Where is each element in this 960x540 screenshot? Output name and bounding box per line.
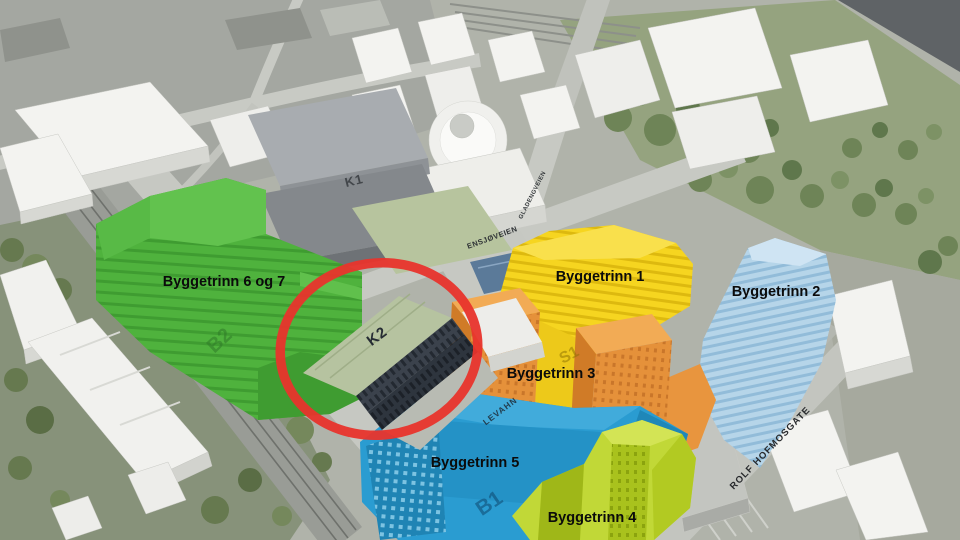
phase-5-label: Byggetrinn 5 bbox=[431, 455, 520, 471]
phase-4-label: Byggetrinn 4 bbox=[548, 510, 637, 526]
phase-3-label: Byggetrinn 3 bbox=[507, 366, 596, 382]
phase-1-label: Byggetrinn 1 bbox=[556, 269, 645, 285]
phase-2-label: Byggetrinn 2 bbox=[732, 284, 821, 300]
phase-6-7-label: Byggetrinn 6 og 7 bbox=[163, 274, 285, 290]
site-plan-canvas: K1 bbox=[0, 0, 960, 540]
